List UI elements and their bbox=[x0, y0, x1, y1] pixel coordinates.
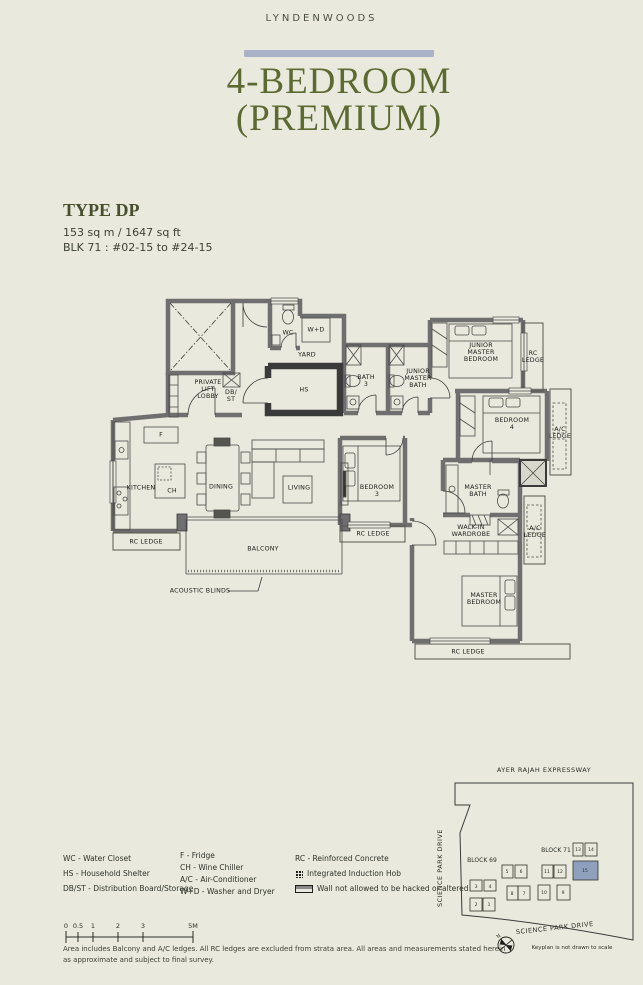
svg-text:5: 5 bbox=[506, 869, 509, 875]
svg-text:4: 4 bbox=[489, 884, 492, 890]
annotation-acoustic-blinds: ACOUSTIC BLINDS bbox=[170, 587, 231, 594]
room-label-master-bath: MASTER BATH bbox=[464, 484, 491, 498]
svg-text:9: 9 bbox=[562, 890, 565, 896]
scale-tick-1: 1 bbox=[91, 922, 95, 930]
svg-text:6: 6 bbox=[520, 869, 523, 875]
scale-tick-05: 0.5 bbox=[73, 922, 83, 930]
svg-text:15: 15 bbox=[582, 868, 588, 874]
title-line-1: 4-BEDROOM bbox=[227, 63, 452, 100]
room-label-bedroom4: BEDROOM 4 bbox=[495, 417, 529, 431]
room-label-junior-master-bath: JUNIOR MASTER BATH bbox=[404, 368, 431, 390]
room-label-wd: W+D bbox=[308, 326, 325, 333]
room-label-ac-ledge-1: A/C LEDGE bbox=[549, 426, 571, 440]
room-label-kitchen: KITCHEN bbox=[127, 484, 156, 491]
brochure-page: LYNDENWOODS 4-BEDROOM (PREMIUM) TYPE DP … bbox=[0, 0, 643, 985]
divider-bar bbox=[244, 50, 434, 57]
room-label-junior-master-bedroom: JUNIOR MASTER BEDROOM bbox=[464, 342, 498, 364]
svg-text:13: 13 bbox=[575, 847, 581, 853]
legend-item: A/C - Air-Conditioner bbox=[180, 875, 275, 884]
scale-tick-5m: 5M bbox=[188, 922, 198, 930]
induction-hob-icon bbox=[295, 870, 303, 878]
room-label-bedroom3: BEDROOM 3 bbox=[360, 484, 394, 498]
room-label-dining: DINING bbox=[209, 483, 233, 490]
room-label-rc-ledge-mid: RC LEDGE bbox=[356, 530, 389, 537]
svg-text:3: 3 bbox=[475, 884, 478, 890]
keyplan-note: Keyplan is not drawn to scale bbox=[532, 945, 613, 951]
floor-plan: PRIVATE LIFT LOBBY DB/ ST WC W+D YARD HS… bbox=[100, 293, 580, 673]
unit-block: BLK 71 : #02-15 to #24-15 bbox=[63, 241, 212, 254]
svg-text:14: 14 bbox=[588, 847, 594, 853]
road-label-science-park-drive-left: SCIENCE PARK DRIVE bbox=[436, 829, 444, 907]
wall-hatch-icon bbox=[295, 885, 313, 893]
unit-area: 153 sq m / 1647 sq ft bbox=[63, 226, 181, 239]
room-label-master-bedroom: MASTER BEDROOM bbox=[467, 592, 501, 606]
legend-item: WC - Water Closet bbox=[63, 854, 193, 863]
room-label-walkin-wardrobe: WALK-IN WARDROBE bbox=[452, 524, 491, 538]
svg-text:1: 1 bbox=[488, 902, 491, 908]
legend-item: W+D - Washer and Dryer bbox=[180, 887, 275, 896]
room-label-bath3: BATH 3 bbox=[357, 374, 375, 388]
brand-name: LYNDENWOODS bbox=[0, 13, 643, 24]
keyplan-buildings bbox=[470, 843, 598, 911]
scale-tick-3: 3 bbox=[141, 922, 145, 930]
legend-column-2: F - Fridge CH - Wine Chiller A/C - Air-C… bbox=[180, 851, 275, 899]
room-label-rc-ledge-right: RC LEDGE bbox=[522, 350, 544, 364]
room-label-private-lift-lobby: PRIVATE LIFT LOBBY bbox=[195, 379, 222, 401]
legend-item: CH - Wine Chiller bbox=[180, 863, 275, 872]
block-71-label: BLOCK 71 bbox=[541, 847, 571, 854]
room-label-rc-ledge-bottom-left: RC LEDGE bbox=[129, 538, 162, 545]
svg-text:12: 12 bbox=[557, 869, 563, 875]
room-label-dbst: DB/ ST bbox=[225, 389, 237, 403]
room-label-balcony: BALCONY bbox=[247, 545, 278, 552]
room-label-wine-chiller: CH bbox=[167, 487, 177, 494]
keyplan: AYER RAJAH EXPRESSWAY SCIENCE PARK DRIVE… bbox=[420, 758, 643, 960]
legend-hob-label: Integrated Induction Hob bbox=[307, 869, 401, 878]
scale-tick-2: 2 bbox=[116, 922, 120, 930]
legend-item: F - Fridge bbox=[180, 851, 275, 860]
room-label-ac-ledge-2: A/C LEDGE bbox=[524, 525, 546, 539]
compass: N bbox=[491, 929, 517, 956]
svg-text:8: 8 bbox=[511, 891, 514, 897]
floor-plan-drawing bbox=[100, 293, 580, 673]
room-label-wc: WC bbox=[282, 329, 293, 336]
legend-item: HS - Household Shelter bbox=[63, 869, 193, 878]
legend-column-1: WC - Water Closet HS - Household Shelter… bbox=[63, 854, 193, 899]
page-title: 4-BEDROOM (PREMIUM) bbox=[227, 63, 452, 137]
svg-text:2: 2 bbox=[475, 902, 478, 908]
room-label-fridge: F bbox=[159, 431, 163, 438]
block-69-label: BLOCK 69 bbox=[467, 857, 497, 864]
svg-text:7: 7 bbox=[523, 891, 526, 897]
unit-type: TYPE DP bbox=[63, 200, 140, 221]
room-label-yard: YARD bbox=[298, 351, 316, 358]
svg-text:11: 11 bbox=[544, 869, 550, 875]
room-label-living: LIVING bbox=[288, 484, 310, 491]
lift-shaft-cross bbox=[170, 303, 231, 371]
svg-text:10: 10 bbox=[541, 890, 547, 896]
room-label-hs: HS bbox=[299, 386, 308, 393]
balcony-posts bbox=[177, 514, 350, 531]
legend-item: DB/ST - Distribution Board/Storage bbox=[63, 884, 193, 893]
title-line-2: (PREMIUM) bbox=[227, 100, 452, 137]
scale-tick-0: 0 bbox=[64, 922, 68, 930]
room-label-rc-ledge-bottom: RC LEDGE bbox=[451, 648, 484, 655]
road-label-expressway: AYER RAJAH EXPRESSWAY bbox=[497, 766, 591, 774]
